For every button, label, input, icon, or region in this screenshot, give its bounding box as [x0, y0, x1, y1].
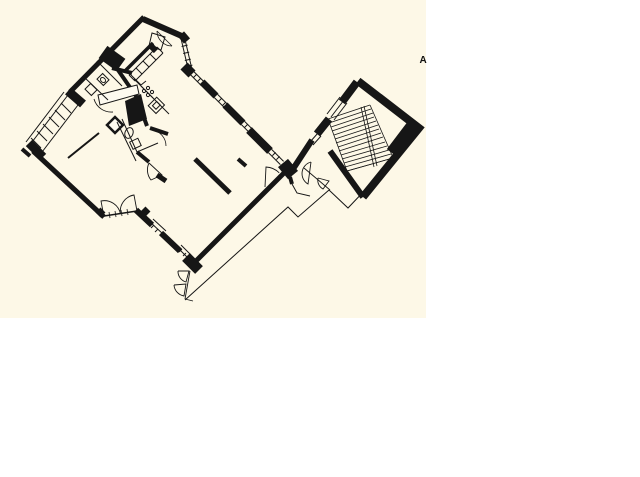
- svg-text:A: A: [420, 55, 427, 66]
